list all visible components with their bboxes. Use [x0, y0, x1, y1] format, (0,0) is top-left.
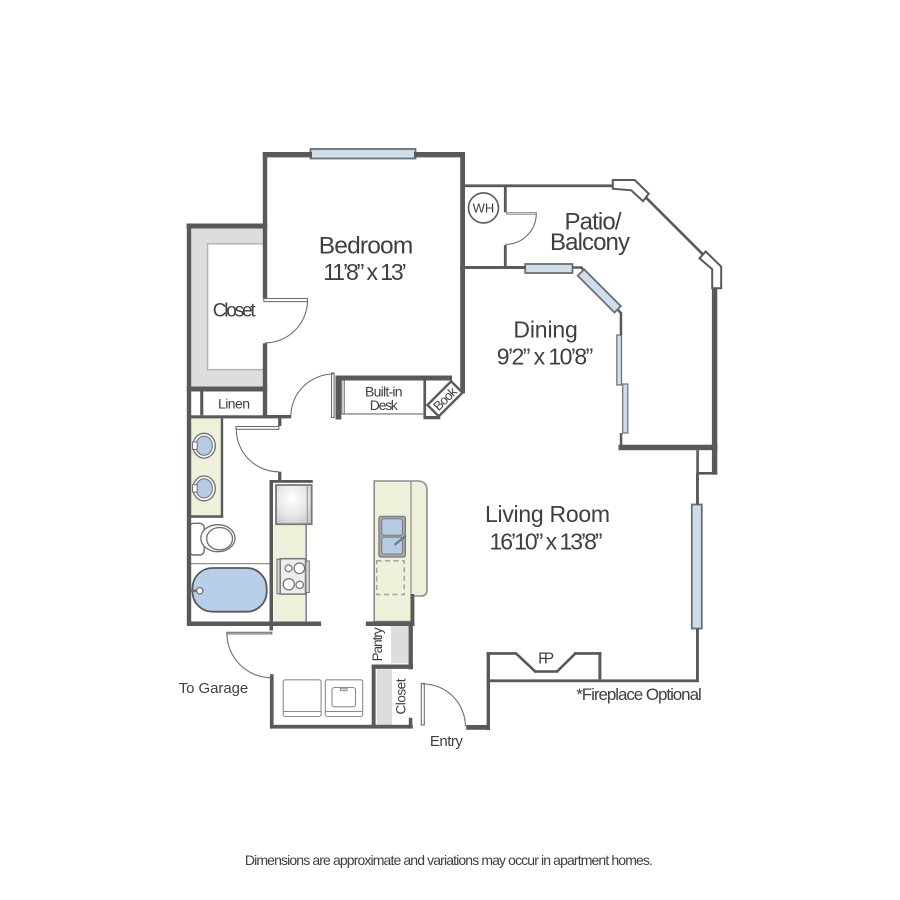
svg-text:Dining: Dining — [513, 316, 578, 342]
svg-text:Balcony: Balcony — [550, 229, 630, 256]
svg-text:Closet: Closet — [394, 678, 409, 714]
svg-text:Entry: Entry — [430, 733, 464, 750]
svg-text:To Garage: To Garage — [179, 680, 249, 697]
svg-text:11’8” x 13’: 11’8” x 13’ — [323, 259, 407, 285]
svg-text:9’2” x 10’8”: 9’2” x 10’8” — [497, 344, 594, 370]
svg-text:Dimensions are approximate and: Dimensions are approximate and variation… — [245, 852, 653, 868]
svg-text:*Fireplace Optional: *Fireplace Optional — [576, 685, 702, 704]
svg-text:Linen: Linen — [218, 395, 250, 411]
svg-text:WH: WH — [473, 200, 495, 215]
svg-text:Pantry: Pantry — [370, 627, 385, 661]
svg-text:Living Room: Living Room — [485, 501, 610, 527]
svg-text:Bedroom: Bedroom — [319, 233, 414, 260]
svg-text:Desk: Desk — [370, 397, 399, 413]
svg-text:FP: FP — [538, 651, 554, 668]
svg-text:Closet: Closet — [213, 301, 257, 322]
svg-text:16’10” x 13’8”: 16’10” x 13’8” — [490, 528, 603, 554]
